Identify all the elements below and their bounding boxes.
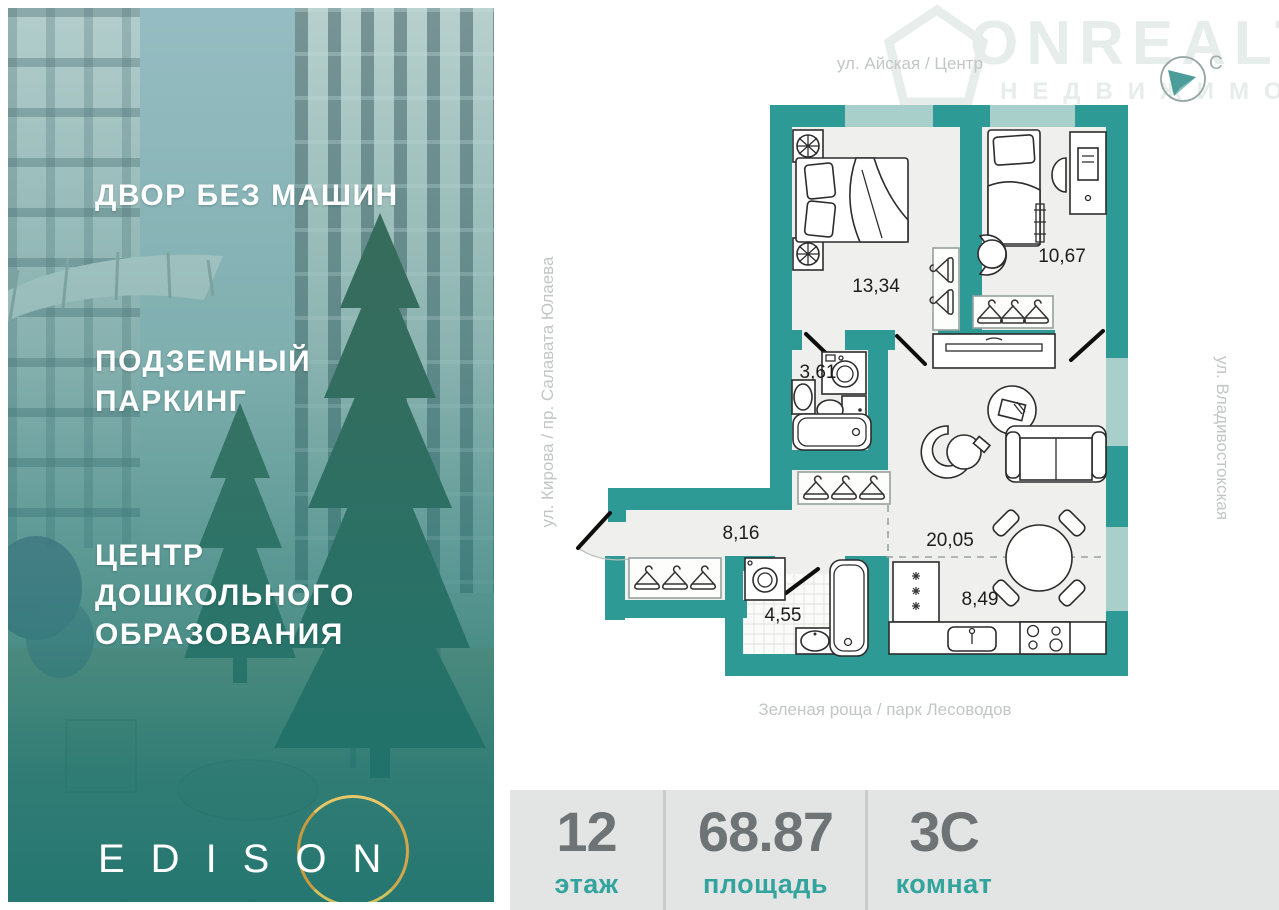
stat-area-label: площадь — [703, 869, 828, 900]
floor-plan-panel: ONREALT НЕДВИЖИМОСТЬ ул. Айская / Центр … — [510, 0, 1279, 910]
watermark-subtitle: НЕДВИЖИМОСТЬ — [1000, 78, 1279, 106]
feature-preschool-center: ЦЕНТР ДОШКОЛЬНОГО ОБРАЗОВАНИЯ — [95, 536, 425, 655]
stats-bar: 12 этаж 68.87 площадь 3С комнат — [510, 790, 1279, 910]
compass: С — [1147, 45, 1237, 115]
compass-icon — [1147, 45, 1237, 115]
stat-floor-value: 12 — [556, 804, 616, 860]
street-label-bottom: Зеленая роща / парк Лесоводов — [735, 700, 1035, 720]
edison-logo: EDISON — [98, 837, 407, 882]
street-label-top: ул. Айская / Центр — [760, 54, 1060, 74]
stat-floor-label: этаж — [555, 869, 619, 900]
stat-rooms: 3С комнат — [868, 790, 1020, 910]
feature-underground-parking: ПОДЗЕМНЫЙ ПАРКИНГ — [95, 342, 345, 421]
street-label-right: ул. Владивостокская — [1212, 356, 1232, 520]
real-estate-flyer: { "left_panel": { "features": [ {"label"… — [0, 0, 1279, 910]
stat-rooms-label: комнат — [896, 869, 993, 900]
stat-rooms-value: 3С — [909, 804, 979, 860]
compass-north-label: С — [1209, 53, 1223, 75]
street-label-left: ул. Кирова / пр. Салавата Юлаева — [538, 257, 558, 528]
teal-overlay — [8, 8, 494, 902]
project-photo: ДВОР БЕЗ МАШИН ПОДЗЕМНЫЙ ПАРКИНГ ЦЕНТР Д… — [8, 8, 494, 902]
stat-area-value: 68.87 — [698, 804, 833, 860]
feature-no-cars: ДВОР БЕЗ МАШИН — [95, 176, 455, 216]
stat-floor: 12 этаж — [510, 790, 663, 910]
stat-area: 68.87 площадь — [663, 790, 868, 910]
